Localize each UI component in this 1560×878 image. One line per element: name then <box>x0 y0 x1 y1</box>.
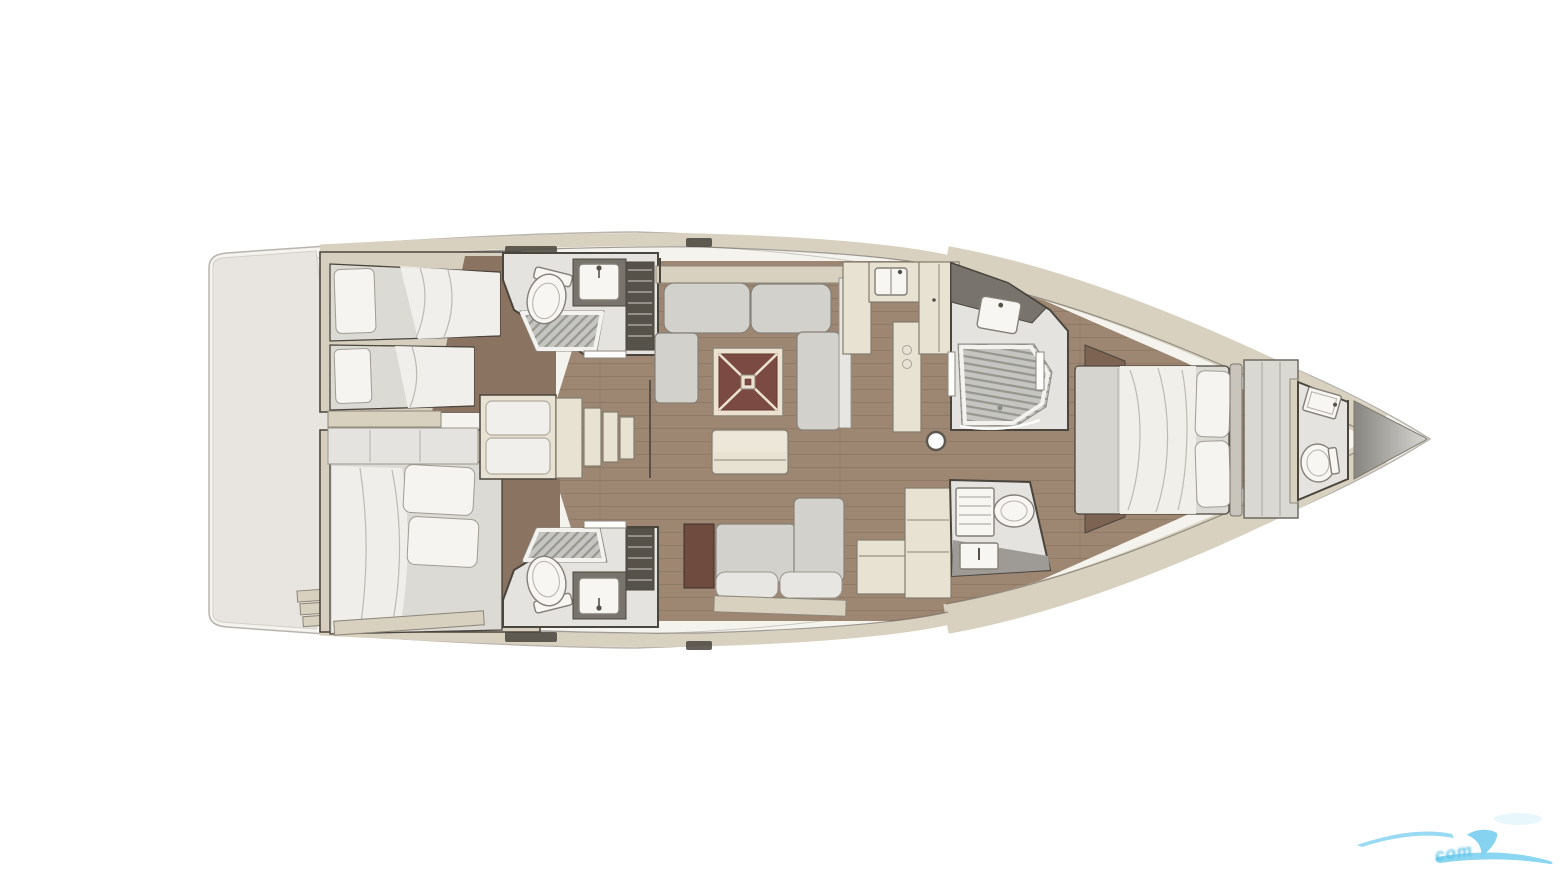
drain-icon <box>998 406 1003 411</box>
pillow <box>1195 370 1231 437</box>
pillow <box>1195 440 1231 507</box>
head-door <box>584 351 626 358</box>
transom-platform <box>213 251 329 629</box>
sofa-back-cushion <box>664 283 750 333</box>
settee-seat-cushion <box>780 572 842 598</box>
bed-foot-box <box>1076 367 1118 513</box>
pillow <box>334 268 376 333</box>
watermark-smudge <box>1494 813 1542 825</box>
faucet-icon <box>898 270 902 274</box>
coffee-bench <box>712 430 788 474</box>
slatted-locker <box>626 528 654 590</box>
duvet <box>395 346 474 408</box>
master-cabin-door <box>1036 352 1044 390</box>
companionway-step <box>620 417 634 459</box>
companionway-step <box>556 398 582 478</box>
pillow <box>334 348 372 403</box>
nav-cabinet <box>905 488 951 598</box>
galley-counter-side <box>893 322 921 432</box>
shelf <box>328 411 441 427</box>
mid-cabin-partition <box>328 428 478 464</box>
engine-box-seat <box>486 438 550 474</box>
chart-desk <box>857 540 907 594</box>
towel-shelf <box>956 488 994 536</box>
hull-window <box>686 641 712 650</box>
companionway-step <box>603 412 618 462</box>
settee-seat-cushion <box>716 572 778 598</box>
folding-table <box>713 348 783 416</box>
cabin-door-walnut <box>684 524 714 588</box>
master-cabin <box>1036 345 1298 533</box>
sink-icon <box>977 296 1022 334</box>
pillow <box>403 464 475 516</box>
pillow <box>407 516 479 568</box>
duvet <box>332 466 408 632</box>
galley-bulkhead <box>843 262 871 354</box>
companionway-step <box>584 408 601 466</box>
headboard <box>1230 364 1242 516</box>
sofa-back-shelf <box>656 266 852 283</box>
shower-room-door <box>948 352 955 396</box>
hull-window <box>505 632 557 642</box>
toilet-icon <box>994 495 1034 527</box>
slatted-locker <box>626 262 654 350</box>
settee-backrest <box>794 498 844 582</box>
hull-window <box>686 238 712 247</box>
engine-box-seat <box>486 401 550 435</box>
sofa-chaise <box>797 332 840 430</box>
head-door <box>584 521 626 528</box>
sofa-back-cushion <box>751 284 831 333</box>
boat-floorplan: com <box>0 0 1560 878</box>
mast-post <box>927 432 945 450</box>
sofa-seat-left <box>655 333 698 403</box>
bow-head-bulkhead <box>1290 379 1298 503</box>
